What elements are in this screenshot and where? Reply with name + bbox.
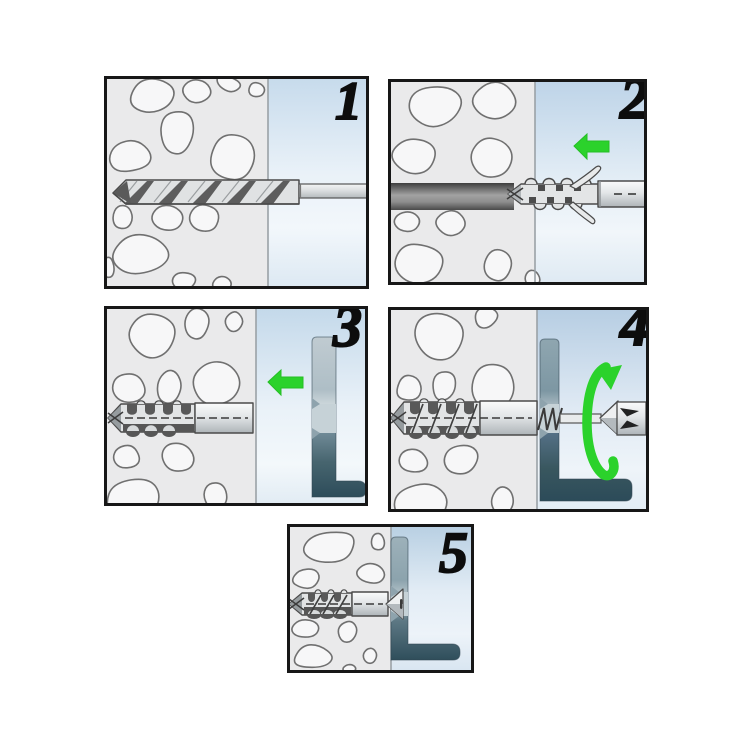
svg-text:5: 5 (439, 520, 468, 585)
svg-text:1: 1 (335, 71, 362, 131)
svg-text:4: 4 (619, 292, 650, 358)
svg-text:3: 3 (332, 294, 362, 359)
